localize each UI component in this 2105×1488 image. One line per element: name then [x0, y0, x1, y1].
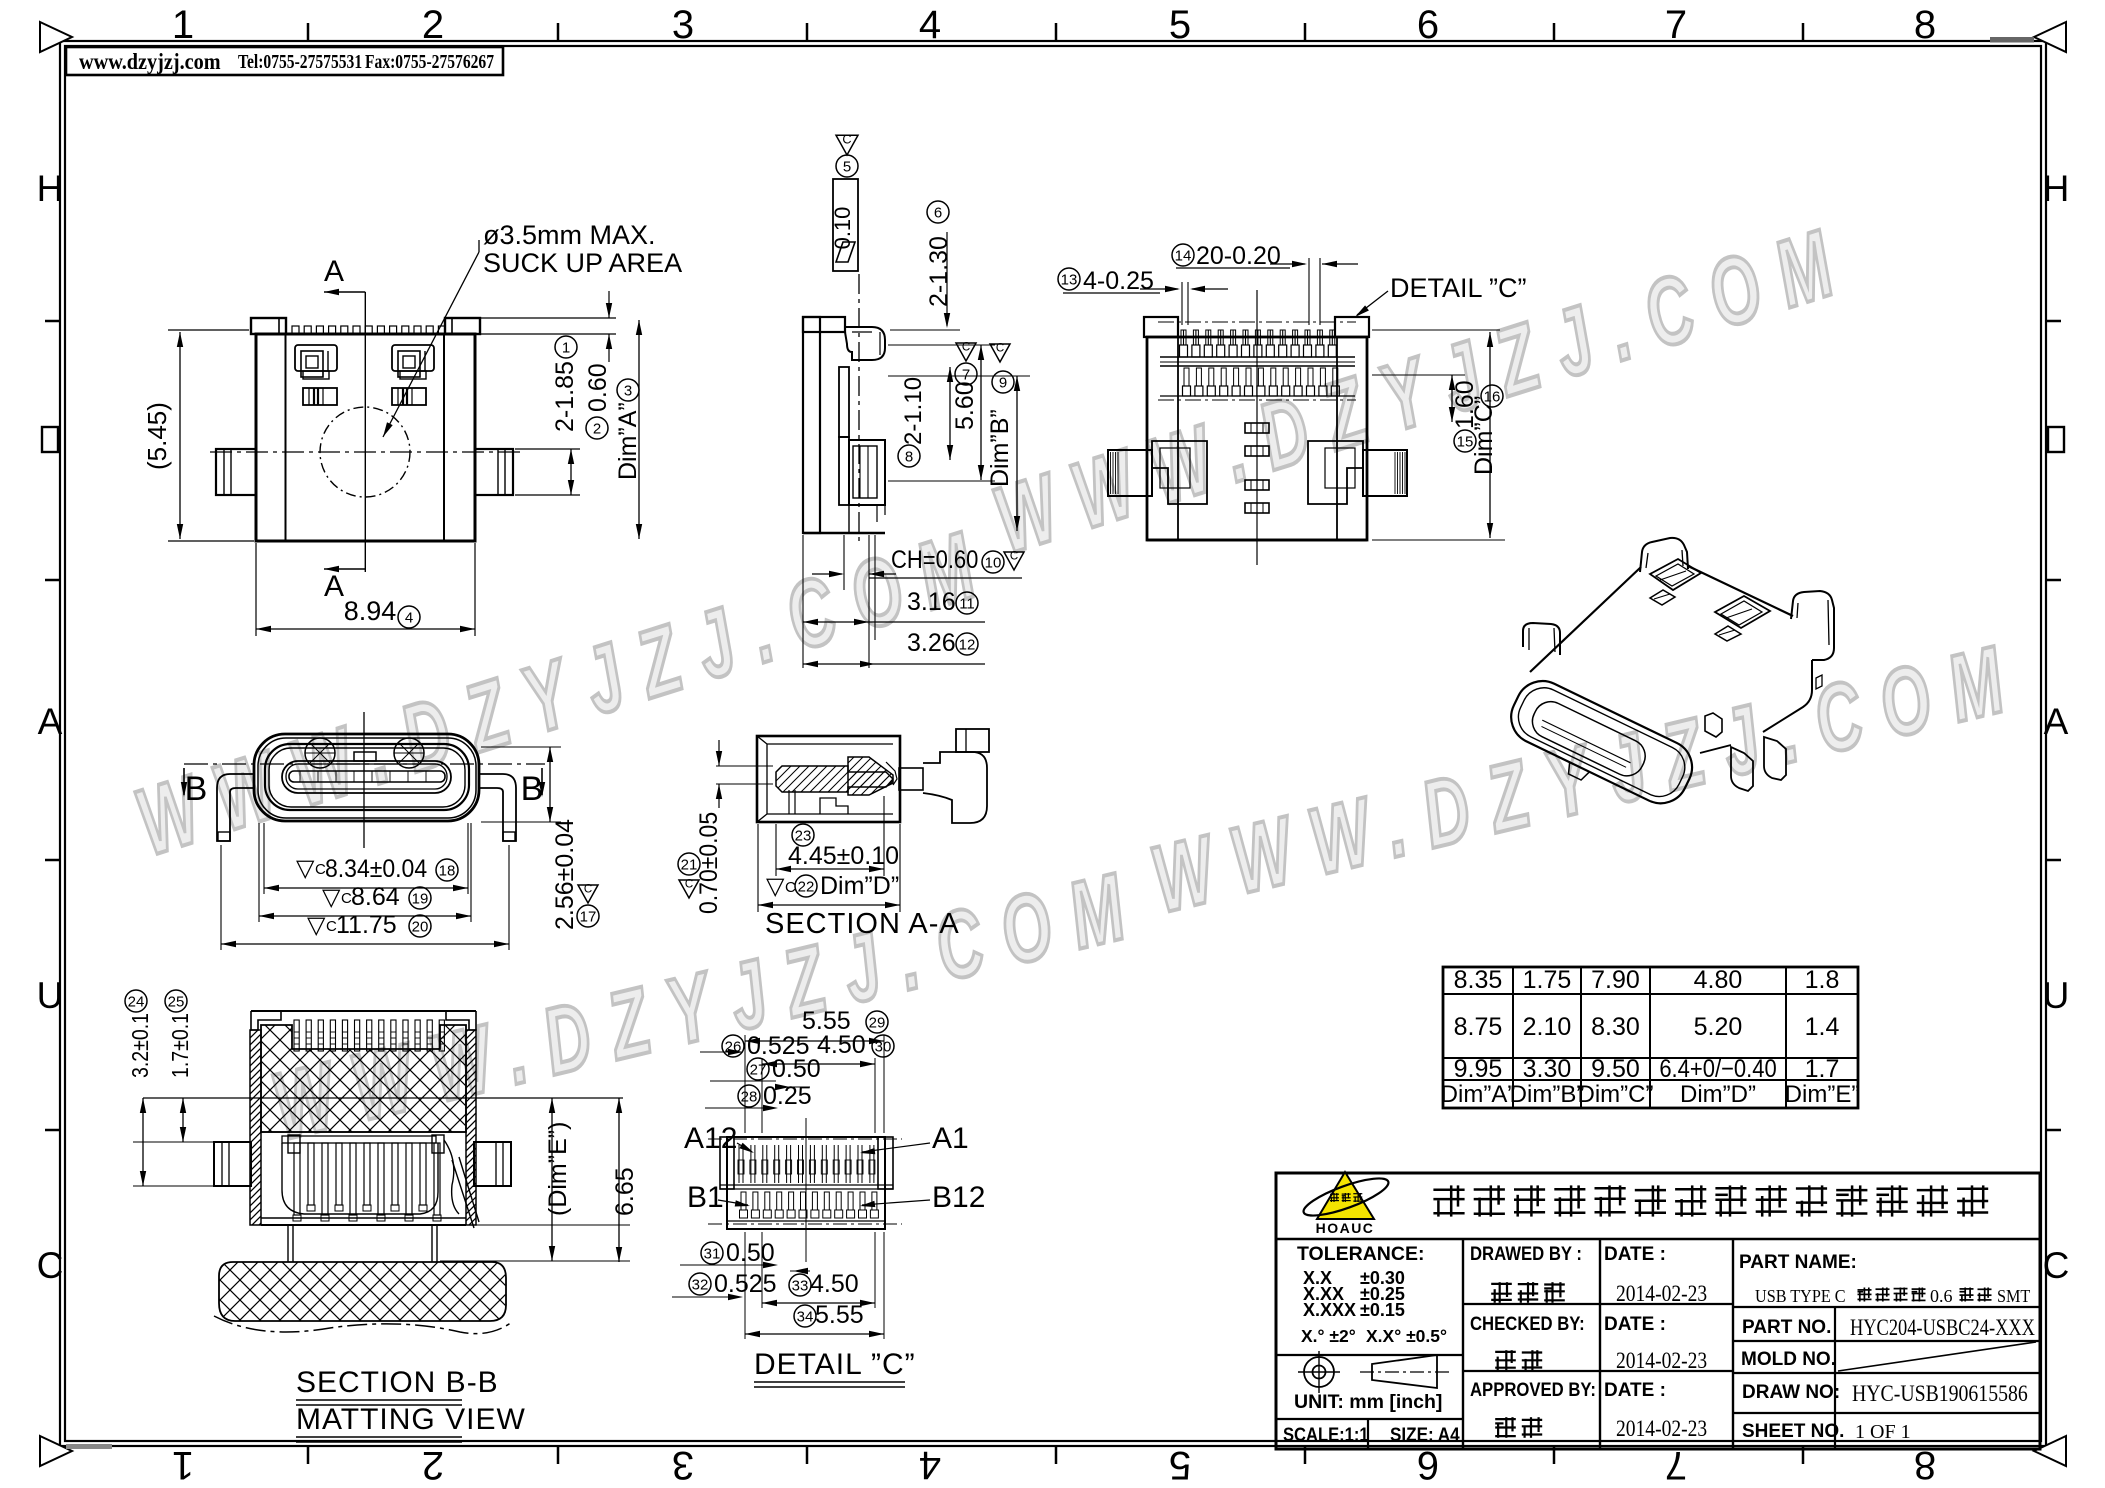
svg-text:1 OF 1: 1 OF 1: [1855, 1421, 1911, 1443]
svg-text:C: C: [37, 1245, 64, 1286]
svg-text:Tel:0755-27575531: Tel:0755-27575531: [238, 50, 362, 72]
svg-text:8.35: 8.35: [1454, 966, 1503, 994]
svg-text:SHEET NO.: SHEET NO.: [1742, 1421, 1844, 1442]
svg-text:11.75: 11.75: [336, 911, 397, 939]
svg-text:▽: ▽: [322, 884, 341, 911]
svg-text:(5.45): (5.45): [142, 402, 172, 470]
svg-text:1: 1: [172, 1443, 194, 1487]
svg-text:A: A: [324, 570, 344, 603]
svg-text:SECTION B-B: SECTION B-B: [296, 1366, 499, 1399]
svg-text:SMT: SMT: [1997, 1286, 2031, 1306]
svg-text:PART NO.: PART NO.: [1742, 1317, 1831, 1338]
svg-text:5: 5: [1169, 1443, 1191, 1487]
svg-text:1.75: 1.75: [1523, 966, 1572, 994]
svg-text:DETAIL ”C”: DETAIL ”C”: [754, 1348, 916, 1381]
svg-text:H: H: [2043, 168, 2070, 209]
svg-text:3: 3: [672, 1443, 694, 1487]
svg-text:Dim”B”: Dim”B”: [1510, 1081, 1585, 1108]
svg-text:DATE :: DATE :: [1604, 1380, 1666, 1401]
svg-text:5.55: 5.55: [815, 1301, 864, 1329]
svg-text:X.° ±2°: X.° ±2°: [1301, 1326, 1356, 1346]
svg-text:HOAUC: HOAUC: [1316, 1220, 1375, 1236]
svg-text:20: 20: [412, 918, 429, 935]
svg-text:CHECKED BY:: CHECKED BY:: [1470, 1313, 1585, 1334]
svg-text:C: C: [996, 343, 1004, 355]
svg-text:0.6: 0.6: [1930, 1286, 1953, 1306]
svg-text:C: C: [1010, 551, 1018, 563]
svg-text:B12: B12: [932, 1181, 985, 1214]
svg-text:SIZE: A4: SIZE: A4: [1390, 1424, 1460, 1445]
svg-text:8.64: 8.64: [351, 883, 400, 911]
svg-text:A: A: [38, 701, 63, 742]
svg-text:0.25: 0.25: [763, 1082, 812, 1110]
svg-text:31: 31: [704, 1245, 721, 1262]
svg-text:21: 21: [681, 856, 698, 873]
svg-text:0.60: 0.60: [584, 363, 612, 412]
svg-text:SCALE:1:1: SCALE:1:1: [1283, 1424, 1369, 1446]
svg-text:C: C: [962, 342, 970, 354]
svg-text:3: 3: [672, 3, 694, 47]
svg-text:4: 4: [405, 609, 413, 626]
svg-text:Dim”A”: Dim”A”: [1441, 1081, 1516, 1108]
svg-text:8.75: 8.75: [1454, 1013, 1503, 1041]
svg-text:28: 28: [741, 1088, 758, 1105]
svg-text:8.34±0.04: 8.34±0.04: [325, 855, 427, 883]
svg-text:2: 2: [593, 420, 601, 437]
svg-text:A1: A1: [932, 1122, 969, 1155]
svg-text:▽: ▽: [766, 873, 785, 900]
svg-text:2014-02-23: 2014-02-23: [1616, 1416, 1707, 1442]
svg-text:30: 30: [875, 1038, 892, 1055]
svg-text:9.95: 9.95: [1454, 1055, 1503, 1083]
svg-text:8: 8: [905, 448, 913, 465]
svg-text:2-1.85: 2-1.85: [551, 361, 579, 432]
svg-text:SUCK UP AREA: SUCK UP AREA: [483, 248, 682, 278]
svg-text:www.dzyjzj.com: www.dzyjzj.com: [79, 49, 221, 74]
svg-text:2.10: 2.10: [1523, 1013, 1572, 1041]
svg-text:Dim”D”: Dim”D”: [820, 872, 899, 900]
svg-text:7: 7: [962, 366, 970, 383]
svg-text:22: 22: [798, 878, 815, 895]
svg-text:9: 9: [999, 374, 1007, 391]
svg-text:HYC204-USBC24-XXX: HYC204-USBC24-XXX: [1850, 1314, 2035, 1341]
svg-text:1: 1: [562, 339, 570, 356]
svg-text:▽: ▽: [296, 855, 315, 882]
svg-text:13: 13: [1061, 271, 1078, 288]
svg-text:Dim”C”: Dim”C”: [1578, 1081, 1654, 1108]
svg-text:8.94: 8.94: [344, 596, 397, 626]
svg-text:B: B: [185, 770, 208, 808]
svg-text:DRAWED BY :: DRAWED BY :: [1470, 1243, 1582, 1264]
svg-text:B1: B1: [687, 1181, 724, 1214]
svg-text:UNIT: mm [inch]: UNIT: mm [inch]: [1294, 1391, 1442, 1413]
svg-text:4.80: 4.80: [1694, 966, 1743, 994]
svg-text:Dim”B”: Dim”B”: [986, 409, 1014, 487]
svg-text:2014-02-23: 2014-02-23: [1616, 1281, 1707, 1307]
svg-text:12: 12: [959, 636, 976, 653]
svg-text:TOLERANCE:: TOLERANCE:: [1297, 1243, 1424, 1265]
svg-text:2014-02-23: 2014-02-23: [1616, 1348, 1707, 1374]
svg-text:SECTION A-A: SECTION A-A: [765, 908, 960, 940]
svg-text:DATE :: DATE :: [1604, 1244, 1666, 1265]
svg-text:6: 6: [934, 204, 942, 221]
svg-text:2-1.10: 2-1.10: [900, 377, 927, 445]
svg-text:3.30: 3.30: [1523, 1055, 1572, 1083]
svg-text:24: 24: [128, 993, 145, 1010]
svg-text:6: 6: [1417, 3, 1439, 47]
svg-text:PART NAME:: PART NAME:: [1739, 1252, 1857, 1273]
svg-text:14: 14: [1175, 247, 1192, 264]
svg-text:10: 10: [985, 554, 1002, 571]
svg-text:5.20: 5.20: [1694, 1013, 1743, 1041]
svg-text:Dim”E”: Dim”E”: [1785, 1081, 1860, 1108]
svg-text:C: C: [842, 133, 851, 147]
svg-text:2: 2: [422, 3, 444, 47]
svg-text:A12: A12: [684, 1122, 737, 1155]
svg-text:2: 2: [422, 1443, 444, 1487]
svg-text:3.16: 3.16: [907, 588, 956, 616]
svg-text:32: 32: [692, 1276, 709, 1293]
svg-text:18: 18: [439, 862, 456, 879]
svg-text:33: 33: [792, 1277, 809, 1294]
svg-text:X.XXX: X.XXX: [1303, 1300, 1356, 1320]
svg-text:2.56±0.04: 2.56±0.04: [551, 819, 579, 930]
svg-text:4.45±0.10: 4.45±0.10: [788, 842, 899, 870]
svg-text:8.30: 8.30: [1591, 1013, 1640, 1041]
svg-text:19: 19: [412, 890, 429, 907]
svg-text:APPROVED BY:: APPROVED BY:: [1470, 1379, 1596, 1400]
svg-text:DATE :: DATE :: [1604, 1314, 1666, 1335]
svg-text:MOLD NO.: MOLD NO.: [1741, 1349, 1836, 1370]
svg-text:X.X° ±0.5°: X.X° ±0.5°: [1366, 1326, 1447, 1346]
svg-text:8: 8: [1914, 3, 1936, 47]
svg-text:1.7±0.1: 1.7±0.1: [168, 1013, 194, 1078]
svg-text:1: 1: [172, 3, 194, 47]
svg-text:4-0.25: 4-0.25: [1083, 267, 1154, 295]
svg-text:A: A: [324, 255, 344, 288]
svg-text:Fax:0755-27576267: Fax:0755-27576267: [365, 50, 494, 72]
svg-text:2-1.30: 2-1.30: [925, 236, 953, 307]
svg-text:MATTING VIEW: MATTING VIEW: [296, 1403, 526, 1436]
svg-text:4.50: 4.50: [817, 1031, 866, 1059]
svg-text:±0.15: ±0.15: [1360, 1300, 1405, 1320]
svg-text:▽: ▽: [307, 912, 326, 939]
svg-text:Dim”A”: Dim”A”: [614, 402, 642, 480]
svg-text:34: 34: [797, 1308, 814, 1325]
svg-text:11: 11: [959, 595, 975, 612]
svg-text:6.4+0/−0.40: 6.4+0/−0.40: [1659, 1055, 1776, 1083]
svg-text:C: C: [685, 879, 693, 891]
svg-text:3.2±0.1: 3.2±0.1: [128, 1013, 154, 1078]
svg-text:25: 25: [168, 993, 185, 1010]
svg-text:5.60: 5.60: [951, 381, 979, 430]
svg-text:27: 27: [750, 1061, 767, 1078]
svg-text:4: 4: [919, 3, 941, 47]
svg-text:4.50: 4.50: [810, 1270, 859, 1298]
svg-text:B: B: [521, 770, 544, 808]
svg-text:7: 7: [1665, 3, 1687, 47]
svg-text:1.7: 1.7: [1805, 1055, 1840, 1083]
svg-text:1.8: 1.8: [1805, 966, 1840, 994]
svg-text:ø3.5mm MAX.: ø3.5mm MAX.: [483, 220, 656, 250]
svg-text:DRAW NO:: DRAW NO:: [1742, 1382, 1840, 1403]
svg-text:7.90: 7.90: [1591, 966, 1640, 994]
svg-text:29: 29: [869, 1014, 886, 1031]
svg-text:H: H: [37, 168, 64, 209]
svg-text:USB TYPE C: USB TYPE C: [1755, 1286, 1846, 1306]
svg-text:3.26: 3.26: [907, 629, 956, 657]
svg-text:17: 17: [580, 908, 597, 925]
svg-text:0.50: 0.50: [772, 1055, 821, 1083]
svg-text:3: 3: [624, 382, 632, 399]
svg-text:5: 5: [843, 158, 851, 175]
svg-text:6.65: 6.65: [611, 1167, 639, 1216]
svg-text:C: C: [584, 884, 592, 896]
svg-text:5: 5: [1169, 3, 1191, 47]
svg-text:U: U: [2043, 975, 2070, 1016]
svg-text:C: C: [2043, 1245, 2070, 1286]
svg-text:20-0.20: 20-0.20: [1196, 242, 1281, 270]
svg-text:HYC-USB190615586: HYC-USB190615586: [1852, 1381, 2028, 1407]
svg-text:Dim”D”: Dim”D”: [1680, 1081, 1756, 1108]
svg-text:DETAIL ”C”: DETAIL ”C”: [1390, 273, 1527, 303]
svg-text:Dim”C”: Dim”C”: [1470, 396, 1498, 475]
svg-text:9.50: 9.50: [1591, 1055, 1640, 1083]
svg-text:A: A: [2044, 701, 2069, 742]
svg-text:U: U: [37, 975, 64, 1016]
svg-text:CH=0.60: CH=0.60: [891, 546, 978, 574]
svg-text:4: 4: [919, 1443, 941, 1487]
svg-text:(Dim”E”): (Dim”E”): [544, 1122, 572, 1216]
svg-text:1.4: 1.4: [1805, 1013, 1840, 1041]
